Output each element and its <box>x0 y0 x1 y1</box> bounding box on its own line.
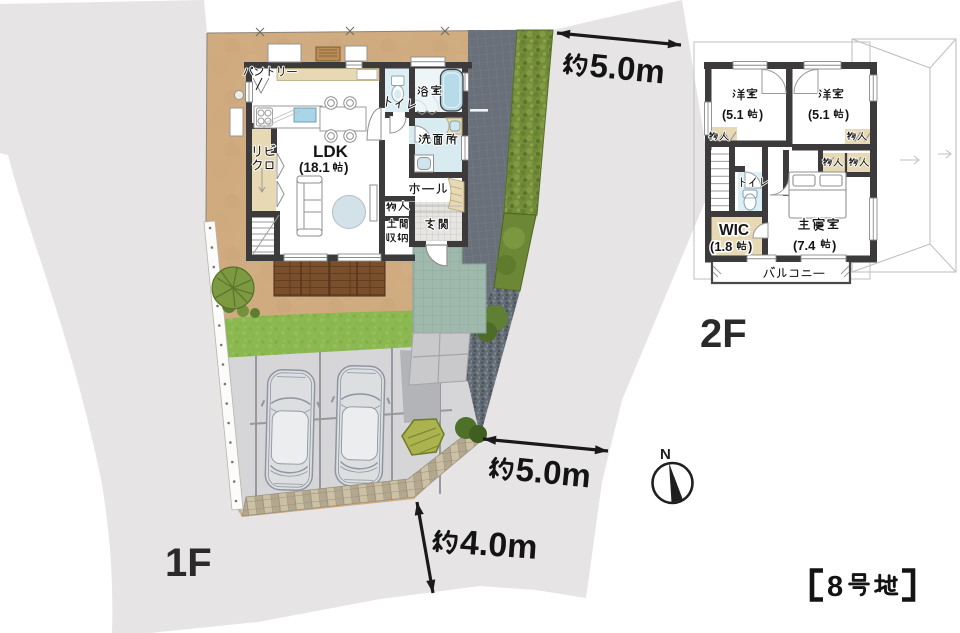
svg-text:(5.1: (5.1 <box>722 108 744 122</box>
svg-text:(1.8: (1.8 <box>710 239 732 254</box>
svg-text:(5.1: (5.1 <box>808 108 830 122</box>
svg-text:1F: 1F <box>165 541 212 585</box>
svg-text:5.0m: 5.0m <box>588 46 666 90</box>
svg-text:(18.1: (18.1 <box>299 160 330 175</box>
svg-text:8: 8 <box>827 571 843 603</box>
svg-text:2F: 2F <box>700 312 747 356</box>
svg-text:): ) <box>832 238 836 253</box>
svg-text:4.0m: 4.0m <box>459 524 539 567</box>
svg-text:): ) <box>344 160 349 175</box>
svg-text:(7.4: (7.4 <box>793 238 816 253</box>
svg-text:WIC: WIC <box>719 222 749 239</box>
svg-text:5.0m: 5.0m <box>514 450 592 494</box>
svg-text:): ) <box>748 239 752 254</box>
svg-text:): ) <box>845 108 849 122</box>
svg-text:): ) <box>759 108 763 122</box>
svg-text:LDK: LDK <box>313 142 349 161</box>
svg-text:N: N <box>660 446 671 463</box>
